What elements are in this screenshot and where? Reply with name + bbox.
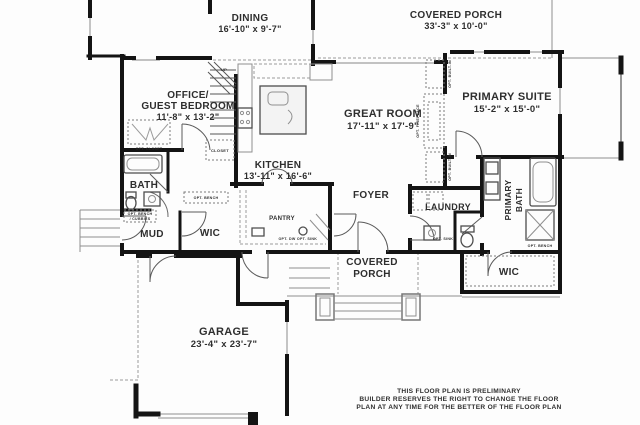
- floor-plan-drawing: DINING 16'-10" x 9'-7" COVERED PORCH 33'…: [0, 0, 640, 425]
- opt-sink-laundry-label: OPT. SINK: [433, 237, 453, 241]
- opt-closet-label: OPT. CLOSET: [136, 147, 163, 151]
- room-labels: DINING 16'-10" x 9'-7" COVERED PORCH 33'…: [130, 10, 552, 350]
- opt-sink-bowl: [299, 227, 307, 235]
- bath-sink: [144, 192, 160, 206]
- opt-bench-cubbies-1: OPT. BENCH: [128, 212, 153, 216]
- opt-builtin-bottom-label: OPT. BUILT-IN: [448, 153, 452, 181]
- great-room-label: GREAT ROOM: [344, 108, 422, 120]
- bath-label: BATH: [130, 180, 158, 191]
- mud-label: MUD: [140, 229, 164, 240]
- covered-porch-top-label: COVERED PORCH: [410, 10, 502, 21]
- dining-dims: 16'-10" x 9'-7": [218, 24, 281, 34]
- opt-fireplace-label: OPT. FIREPLACE: [416, 104, 420, 138]
- opt-bench-wic-label: OPT. BENCH: [194, 196, 219, 200]
- annotation-labels: UP CLOSET OPT. CLOSET OPT. BENCH / CUBBI…: [128, 60, 553, 248]
- primary-suite-dims: 15'-2" x 15'-0": [474, 104, 541, 115]
- great-room-dims: 17'-11" x 17'-9": [347, 121, 419, 132]
- kitchen-dims: 13'-11" x 16'-6": [244, 171, 312, 181]
- opt-builtin-top-box: [426, 60, 444, 88]
- pantry-label: PANTRY: [269, 216, 295, 222]
- foyer-label: FOYER: [353, 190, 389, 201]
- range: [238, 108, 252, 128]
- opt-dw-label: OPT. DW: [278, 237, 295, 241]
- dining-label: DINING: [232, 13, 269, 24]
- disclaimer-line-2: BUILDER RESERVES THE RIGHT TO CHANGE THE…: [359, 396, 558, 403]
- disclaimer: THIS FLOOR PLAN IS PRELIMINARY BUILDER R…: [356, 388, 561, 411]
- opt-bench-cubbies-2: / CUBBIES: [130, 217, 151, 221]
- primary-suite-label: PRIMARY SUITE: [462, 91, 551, 103]
- closet-label: CLOSET: [211, 148, 229, 153]
- opt-sink-kitchen-label: OPT. SINK: [297, 237, 317, 241]
- floor-plan-page: DINING 16'-10" x 9'-7" COVERED PORCH 33'…: [0, 0, 640, 425]
- opt-dw-box: [252, 228, 264, 236]
- garage-label: GARAGE: [199, 326, 249, 338]
- kitchen-label: KITCHEN: [255, 160, 302, 171]
- up-label: UP: [221, 67, 227, 72]
- garage-dims: 23'-4" x 23'-7": [191, 339, 258, 350]
- office-label-2: GUEST BEDROOM: [141, 101, 234, 112]
- vanity-sink-1: [486, 162, 498, 174]
- primary-bath-label-1: PRIMARY: [503, 179, 513, 220]
- kitchen-island: [260, 86, 306, 134]
- disclaimer-line-1: THIS FLOOR PLAN IS PRELIMINARY: [397, 388, 521, 395]
- wic-right-label: WIC: [499, 267, 519, 278]
- covered-porch-bottom-label-1: COVERED: [346, 257, 398, 268]
- office-label-1: OFFICE/: [167, 90, 209, 101]
- covered-porch-top-dims: 33'-3" x 10'-0": [424, 21, 487, 31]
- wc-toilet-bowl: [461, 233, 473, 247]
- office-dims: 11'-8" x 13'-2": [157, 112, 220, 122]
- covered-porch-bottom-label-2: PORCH: [353, 269, 391, 280]
- laundry-label: LAUNDRY: [425, 202, 471, 212]
- fridge: [310, 64, 332, 80]
- primary-bath-label-2: BATH: [514, 188, 524, 212]
- opt-builtin-top-label: OPT. BUILT-IN: [448, 60, 452, 88]
- disclaimer-line-3: PLAN AT ANY TIME FOR THE BETTER OF THE F…: [356, 404, 561, 411]
- opt-bench-shower-label: OPT. BENCH: [528, 244, 553, 248]
- vanity-sink-2: [486, 182, 498, 194]
- wic-left-label: WIC: [200, 228, 220, 239]
